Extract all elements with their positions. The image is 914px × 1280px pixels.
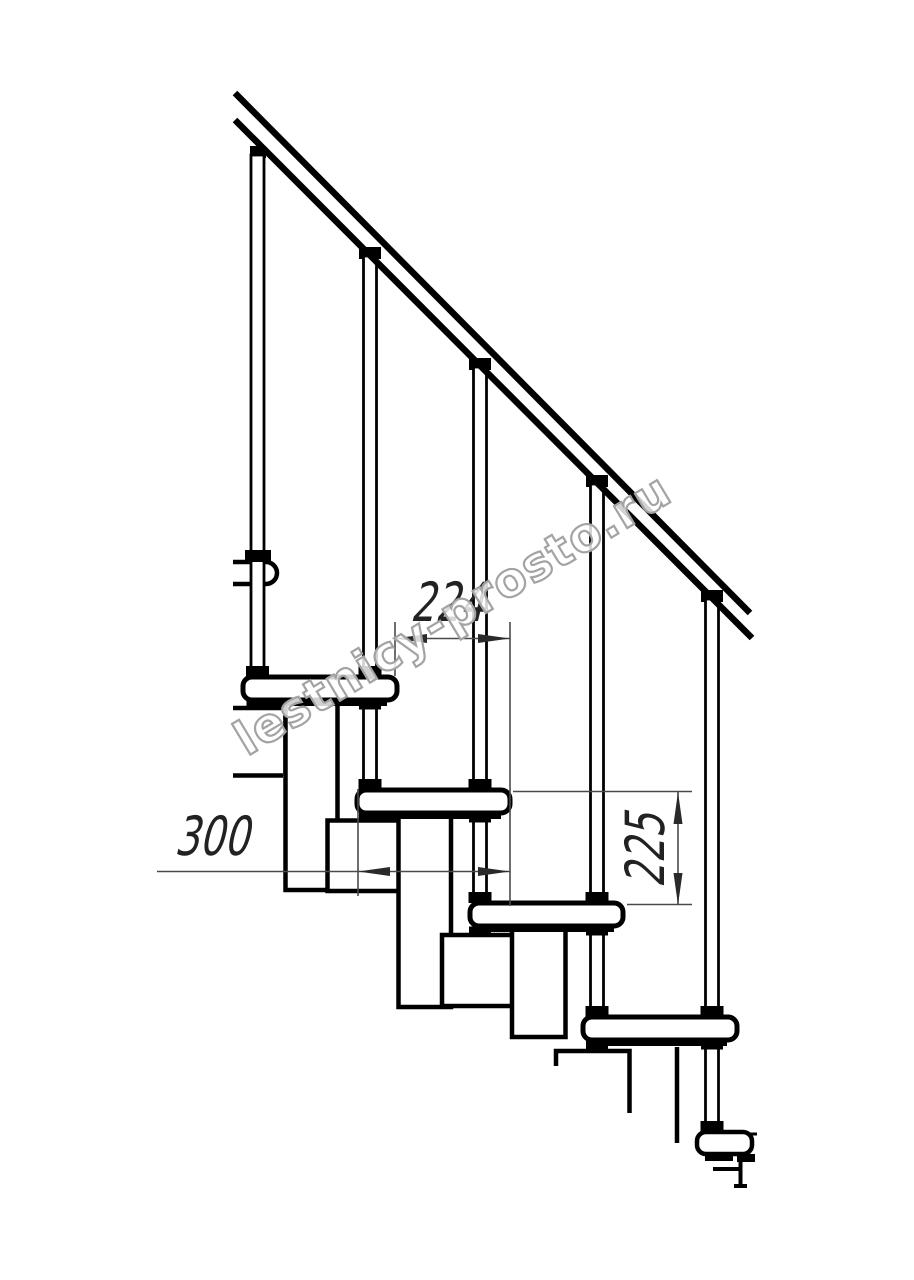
handrail-top-line — [235, 93, 750, 613]
rod-tread1-tread2 — [364, 700, 377, 790]
bottom-bracket — [697, 1132, 757, 1186]
rod-tread4-base — [706, 1040, 719, 1132]
dim-224-arrow-right — [478, 634, 510, 643]
baluster-2 — [359, 247, 381, 677]
staircase-drawing: 224 300 225 lestnicy-prosto.ru — [0, 0, 914, 1280]
tread-2 — [357, 790, 510, 823]
baluster-1 — [245, 146, 271, 677]
spine-box-1 — [328, 821, 404, 892]
watermark-text: lestnicy-prosto.ru — [225, 463, 681, 767]
baluster-5 — [701, 590, 723, 1017]
handrail — [235, 93, 752, 638]
baluster-1-bracket-collar — [245, 550, 271, 562]
spine-box-3-cut — [556, 1051, 630, 1113]
rod-tread2-tread3 — [474, 813, 487, 903]
drawing-canvas: 224 300 225 lestnicy-prosto.ru — [0, 0, 914, 1280]
dim-225-label: 225 — [615, 802, 678, 892]
floor-step-cut — [713, 1162, 747, 1186]
spine-box-2 — [442, 935, 518, 1006]
tread-4 — [583, 1017, 737, 1050]
dim-300-label: 300 — [171, 806, 261, 869]
bottom-bracket-shadow — [705, 1154, 733, 1161]
tread-3 — [469, 903, 623, 936]
dim-300-arrow-right — [478, 867, 510, 876]
rod-tread3-tread4 — [591, 927, 604, 1017]
spine-bar-3 — [512, 926, 566, 1037]
